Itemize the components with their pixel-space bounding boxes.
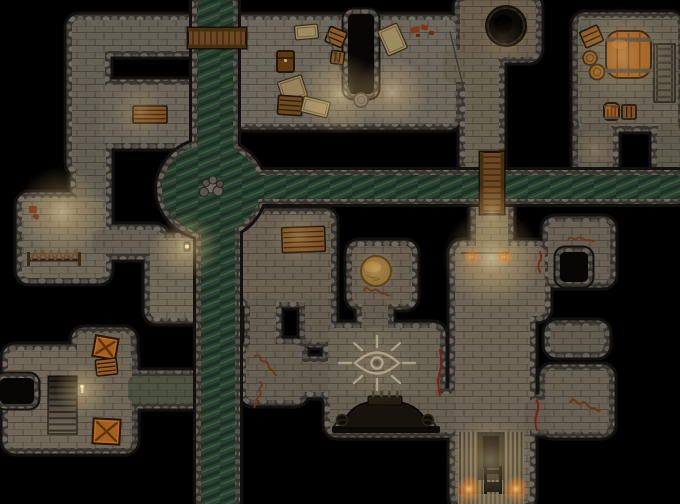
light-glow — [442, 208, 542, 308]
passage-bench-sw-tiles — [250, 296, 276, 350]
bridge-north — [186, 26, 248, 50]
light-glow — [575, 130, 615, 170]
light-glow — [479, 18, 527, 66]
chest — [277, 51, 294, 72]
crate-x — [92, 418, 120, 444]
dungeon-map — [0, 0, 680, 504]
small-box — [622, 105, 636, 119]
island-stone — [209, 176, 217, 184]
light-glow — [502, 475, 530, 503]
corridor-sw-canal-tiles — [128, 376, 202, 403]
light-glow — [354, 248, 398, 292]
island-stone — [217, 181, 224, 188]
crate-x — [92, 335, 118, 360]
barrel-small — [604, 103, 619, 120]
table — [294, 24, 318, 40]
canal-water — [240, 175, 680, 199]
notch-room-side — [560, 252, 588, 282]
island-stone — [200, 188, 209, 197]
map-viewport — [0, 0, 680, 504]
corridor-barrel-east-tiles — [657, 124, 680, 171]
light-glow — [494, 247, 514, 267]
passage-bench-se-tiles — [305, 296, 331, 342]
light-glow — [574, 8, 670, 104]
light-glow — [455, 475, 483, 503]
light-glow — [153, 214, 219, 280]
light-glow — [269, 207, 329, 267]
light-glow — [110, 82, 170, 142]
light-glow — [55, 363, 109, 417]
notch-room-sw — [0, 378, 34, 404]
canal-water — [197, 0, 233, 168]
island-stone — [203, 180, 210, 187]
light-glow — [462, 247, 482, 267]
alcove-east-tiles — [550, 326, 604, 352]
light-glow — [16, 166, 108, 258]
light-glow — [335, 321, 419, 405]
light-glow — [356, 56, 428, 128]
passage-graffiti-east-tiles — [298, 362, 332, 392]
